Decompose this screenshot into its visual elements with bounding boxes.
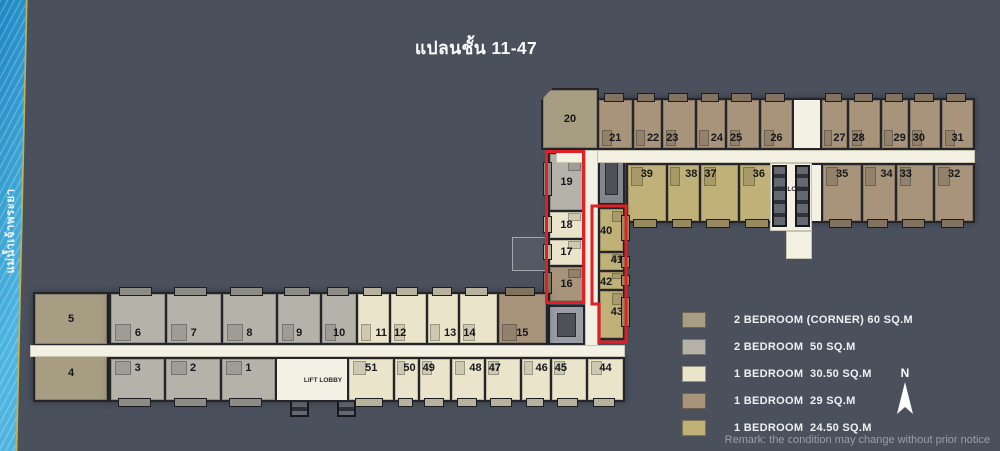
legend-row: 1 BEDROOM 30.50 SQ.M xyxy=(682,365,913,382)
unit-number: 32 xyxy=(948,169,960,180)
unit-number: 25 xyxy=(730,133,742,144)
legend-color-swatch xyxy=(682,312,706,328)
unit-number: 28 xyxy=(852,133,864,144)
unit-number: 47 xyxy=(489,363,501,374)
unit-number: 23 xyxy=(666,133,678,144)
unit-number: 13 xyxy=(444,328,456,339)
unit-45[interactable]: 45 xyxy=(550,359,586,400)
unit-29[interactable]: 29 xyxy=(880,100,908,148)
unit-number: 34 xyxy=(880,169,892,180)
unit-34[interactable]: 34 xyxy=(861,165,895,221)
unit-51[interactable]: 51 xyxy=(347,359,393,400)
floor-plan-canvas: แม่น้ำเจ้าพระยา แปลนชั้น 11-47 212223242… xyxy=(0,0,1000,451)
service-room xyxy=(548,305,585,345)
unit-27[interactable]: 27 xyxy=(820,100,848,148)
unit-number: 36 xyxy=(753,169,765,180)
legend-color-swatch xyxy=(682,393,706,409)
unit-5[interactable]: 5 xyxy=(35,294,107,344)
top-wing-corridor xyxy=(556,150,975,163)
top-wing-upper-row: 2122232425262728293031 xyxy=(597,98,975,150)
unit-number: 2 xyxy=(190,363,196,374)
unit-number: 22 xyxy=(647,133,659,144)
legend-row: 2 BEDROOM (CORNER) 60 SQ.M xyxy=(682,311,913,328)
legend-row: 1 BEDROOM 29 SQ.M xyxy=(682,392,913,409)
unit-number: 35 xyxy=(836,169,848,180)
unit-number: 31 xyxy=(951,133,963,144)
top-lift-lobby-ext xyxy=(786,231,812,259)
unit-12[interactable]: 12 xyxy=(389,294,426,343)
unit-number: 48 xyxy=(469,363,481,374)
unit-number: 5 xyxy=(68,314,74,325)
unit-39[interactable]: 39 xyxy=(628,165,666,221)
unit-number: 1 xyxy=(245,363,251,374)
legend-label: 1 BEDROOM 29 SQ.M xyxy=(734,395,856,407)
unit-number: 38 xyxy=(685,169,697,180)
unit-50[interactable]: 50 xyxy=(393,359,417,400)
unit-22[interactable]: 22 xyxy=(632,100,662,148)
unit-number: 29 xyxy=(894,133,906,144)
unit-11[interactable]: 11 xyxy=(356,294,389,343)
legend: 2 BEDROOM (CORNER) 60 SQ.M 2 BEDROOM 50 … xyxy=(682,311,913,436)
unit-number: 45 xyxy=(555,363,567,374)
unit-49[interactable]: 49 xyxy=(418,359,451,400)
unit-44[interactable]: 44 xyxy=(586,359,623,400)
bottom-wing-corridor xyxy=(30,345,625,357)
unit-30[interactable]: 30 xyxy=(908,100,940,148)
legend-color-swatch xyxy=(682,366,706,382)
annex-outline xyxy=(512,237,546,271)
unit-number: 49 xyxy=(423,363,435,374)
unit-number: 21 xyxy=(609,133,621,144)
unit-number: 37 xyxy=(704,169,716,180)
unit-21[interactable]: 21 xyxy=(599,100,632,148)
unit-28[interactable]: 28 xyxy=(847,100,879,148)
unit-2[interactable]: 2 xyxy=(164,359,219,400)
river-name-label: แม่น้ำเจ้าพระยา xyxy=(2,166,20,296)
legend-color-swatch xyxy=(682,420,706,436)
unit-number: 50 xyxy=(403,363,415,374)
unit-1[interactable]: 1 xyxy=(220,359,275,400)
unit-number: 30 xyxy=(913,133,925,144)
unit-number: 10 xyxy=(333,328,345,339)
unit-number: 39 xyxy=(641,169,653,180)
unit-number: 14 xyxy=(463,328,475,339)
north-arrow-icon xyxy=(896,382,914,416)
unit-38[interactable]: 38 xyxy=(666,165,700,221)
unit-35[interactable]: 35 xyxy=(821,165,861,221)
unit-number: 15 xyxy=(516,328,528,339)
unit-31[interactable]: 31 xyxy=(940,100,973,148)
unit-8[interactable]: 8 xyxy=(221,294,277,343)
unit-number: 44 xyxy=(599,363,611,374)
highlight-box-units-40-43 xyxy=(590,204,630,345)
unit-number: 26 xyxy=(770,133,782,144)
unit-15[interactable]: 15 xyxy=(497,294,546,343)
unit-number: 7 xyxy=(191,328,197,339)
legend-row: 1 BEDROOM 24.50 SQ.M xyxy=(682,419,913,436)
legend-color-swatch xyxy=(682,339,706,355)
unit-37[interactable]: 37 xyxy=(699,165,738,221)
unit-24[interactable]: 24 xyxy=(695,100,725,148)
legend-label: 1 BEDROOM 30.50 SQ.M xyxy=(734,368,872,380)
unit-9[interactable]: 9 xyxy=(276,294,320,343)
unit-26[interactable]: 26 xyxy=(759,100,792,148)
legend-label: 1 BEDROOM 24.50 SQ.M xyxy=(734,422,872,434)
lift-lobby-label: LIFT LOBBY xyxy=(303,377,343,385)
unit-number: 46 xyxy=(535,363,547,374)
unit-32[interactable]: 32 xyxy=(933,165,973,221)
corridor-hall xyxy=(792,100,820,148)
unit-number: 24 xyxy=(711,133,723,144)
unit-number: 51 xyxy=(365,363,377,374)
unit-number: 6 xyxy=(135,328,141,339)
unit-23[interactable]: 23 xyxy=(661,100,695,148)
elevator-shaft xyxy=(795,165,810,227)
top-lift-lobby xyxy=(770,163,812,231)
unit-6[interactable]: 6 xyxy=(111,294,165,343)
unit-14[interactable]: 14 xyxy=(458,294,496,343)
unit-number: 20 xyxy=(564,114,576,125)
unit-33[interactable]: 33 xyxy=(895,165,934,221)
bottom-wing-upper-row: 6789101112131415 xyxy=(109,292,548,345)
unit-number: 11 xyxy=(375,328,387,339)
unit-47[interactable]: 47 xyxy=(484,359,520,400)
lift-lobby-label: LIFT LOBBY xyxy=(770,186,812,194)
unit-7[interactable]: 7 xyxy=(165,294,221,343)
unit-number: 3 xyxy=(135,363,141,374)
north-indicator: N xyxy=(890,366,920,421)
elevator-shaft xyxy=(772,165,787,227)
legend-row: 2 BEDROOM 50 SQ.M xyxy=(682,338,913,355)
unit-13[interactable]: 13 xyxy=(426,294,459,343)
bottom-wing-lower-row: 3215150494847464544 xyxy=(109,357,625,402)
unit-10[interactable]: 10 xyxy=(320,294,356,343)
unit-3[interactable]: 3 xyxy=(111,359,164,400)
unit-number: 4 xyxy=(68,368,74,379)
unit-48[interactable]: 48 xyxy=(450,359,483,400)
unit-46[interactable]: 46 xyxy=(520,359,550,400)
unit-number: 12 xyxy=(394,328,406,339)
unit-number: 8 xyxy=(246,328,252,339)
legend-label: 2 BEDROOM 50 SQ.M xyxy=(734,341,856,353)
unit-number: 27 xyxy=(833,133,845,144)
page-title: แปลนชั้น 11-47 xyxy=(0,34,1000,62)
highlight-box-units-16-19 xyxy=(545,150,585,304)
unit-number: 9 xyxy=(296,328,302,339)
north-label: N xyxy=(890,366,920,380)
unit-25[interactable]: 25 xyxy=(725,100,759,148)
unit-number: 33 xyxy=(900,169,912,180)
legend-label: 2 BEDROOM (CORNER) 60 SQ.M xyxy=(734,314,913,326)
unit-20[interactable]: 20 xyxy=(541,88,599,150)
